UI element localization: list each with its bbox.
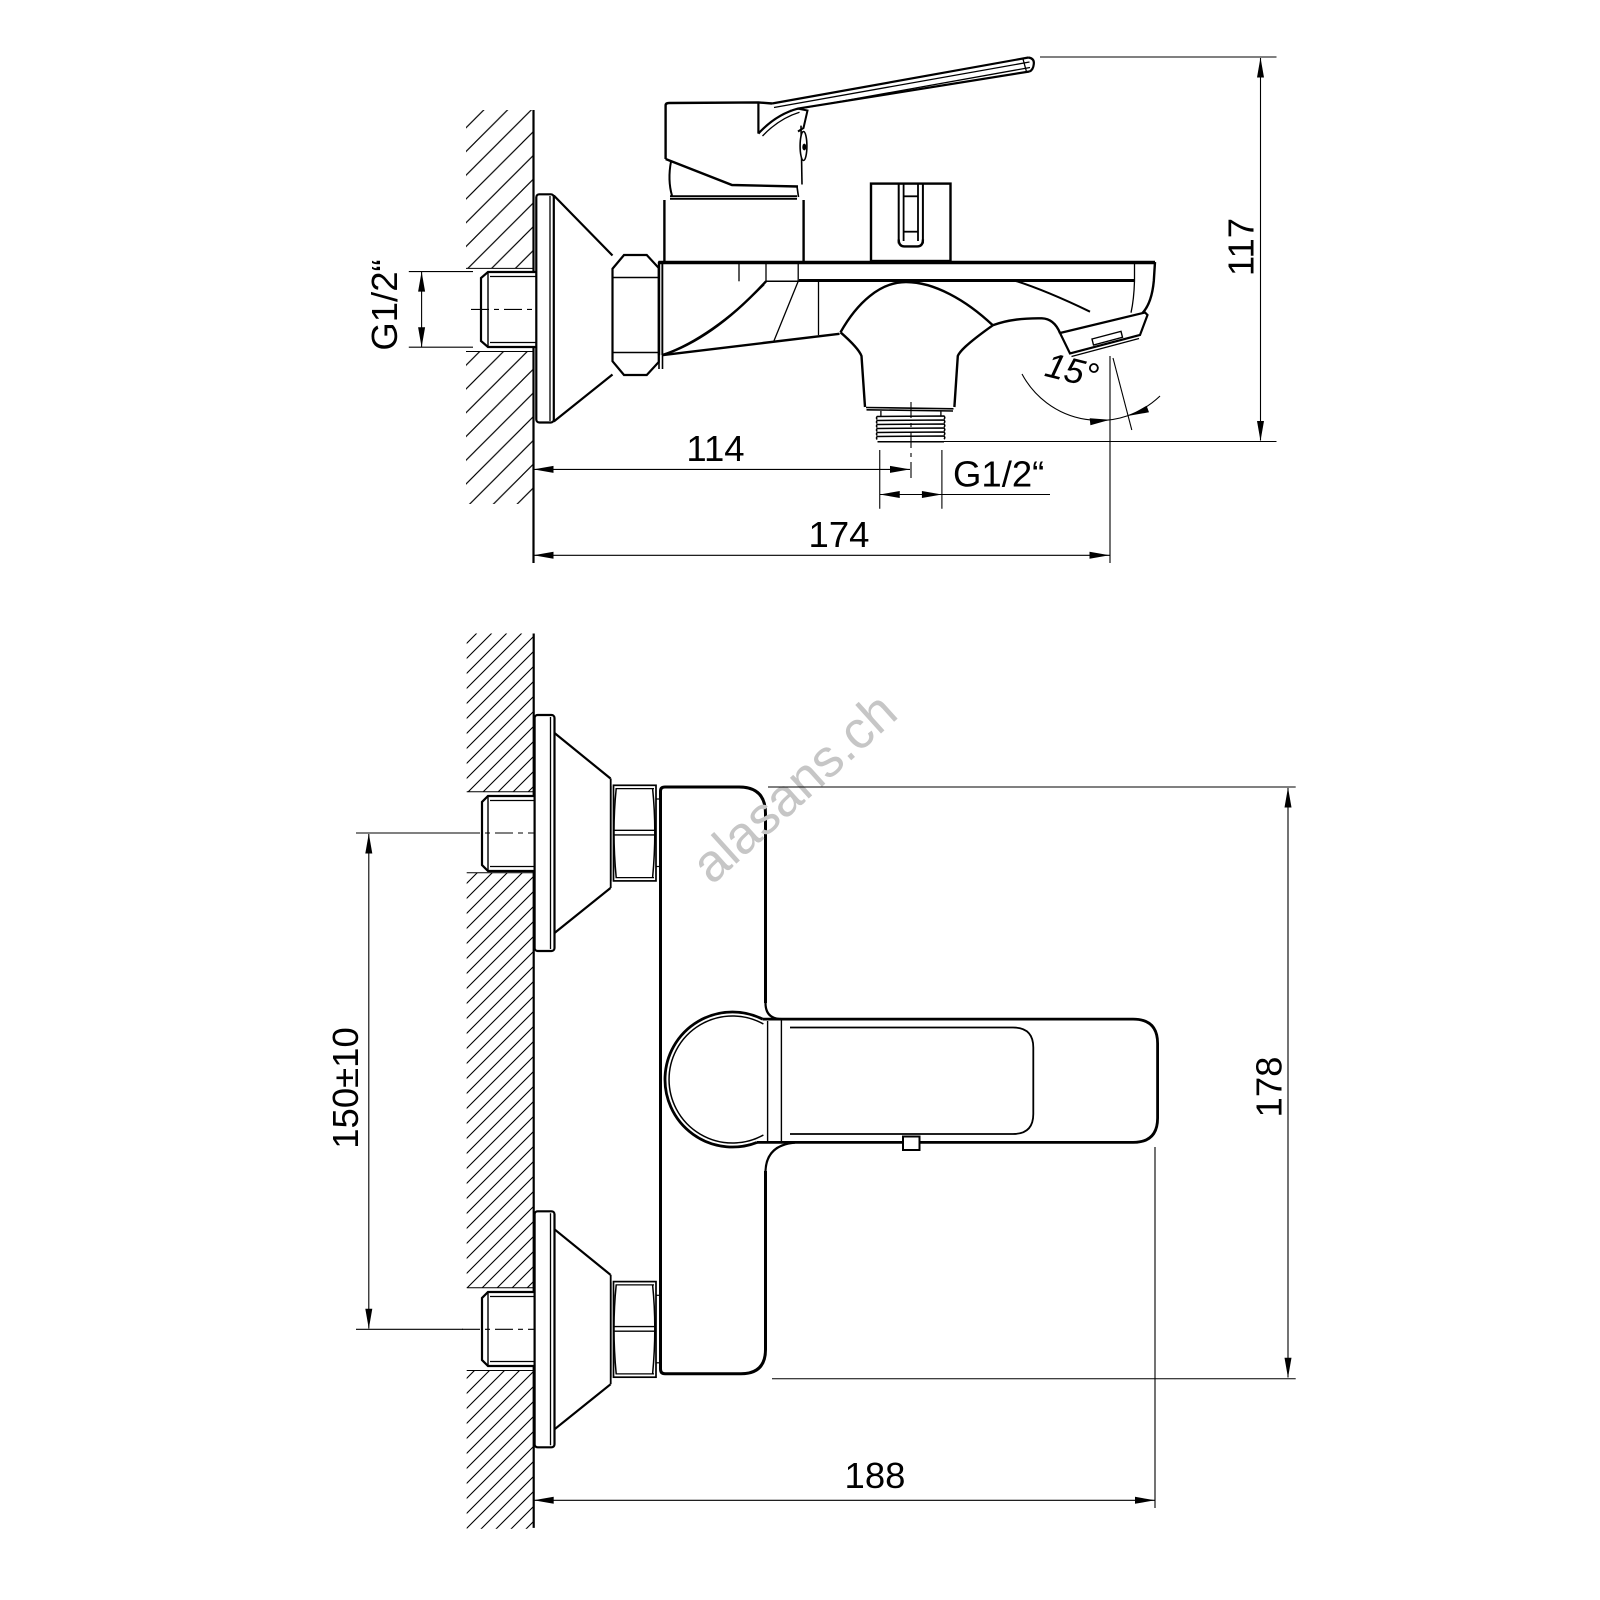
svg-text:G1/2“: G1/2“: [953, 454, 1044, 495]
svg-text:G1/2“: G1/2“: [364, 259, 405, 350]
svg-text:174: 174: [809, 514, 870, 555]
svg-text:178: 178: [1249, 1057, 1290, 1118]
svg-text:117: 117: [1221, 218, 1262, 276]
svg-text:188: 188: [845, 1455, 906, 1496]
svg-text:114: 114: [686, 428, 744, 469]
svg-text:150±10: 150±10: [325, 1027, 366, 1149]
